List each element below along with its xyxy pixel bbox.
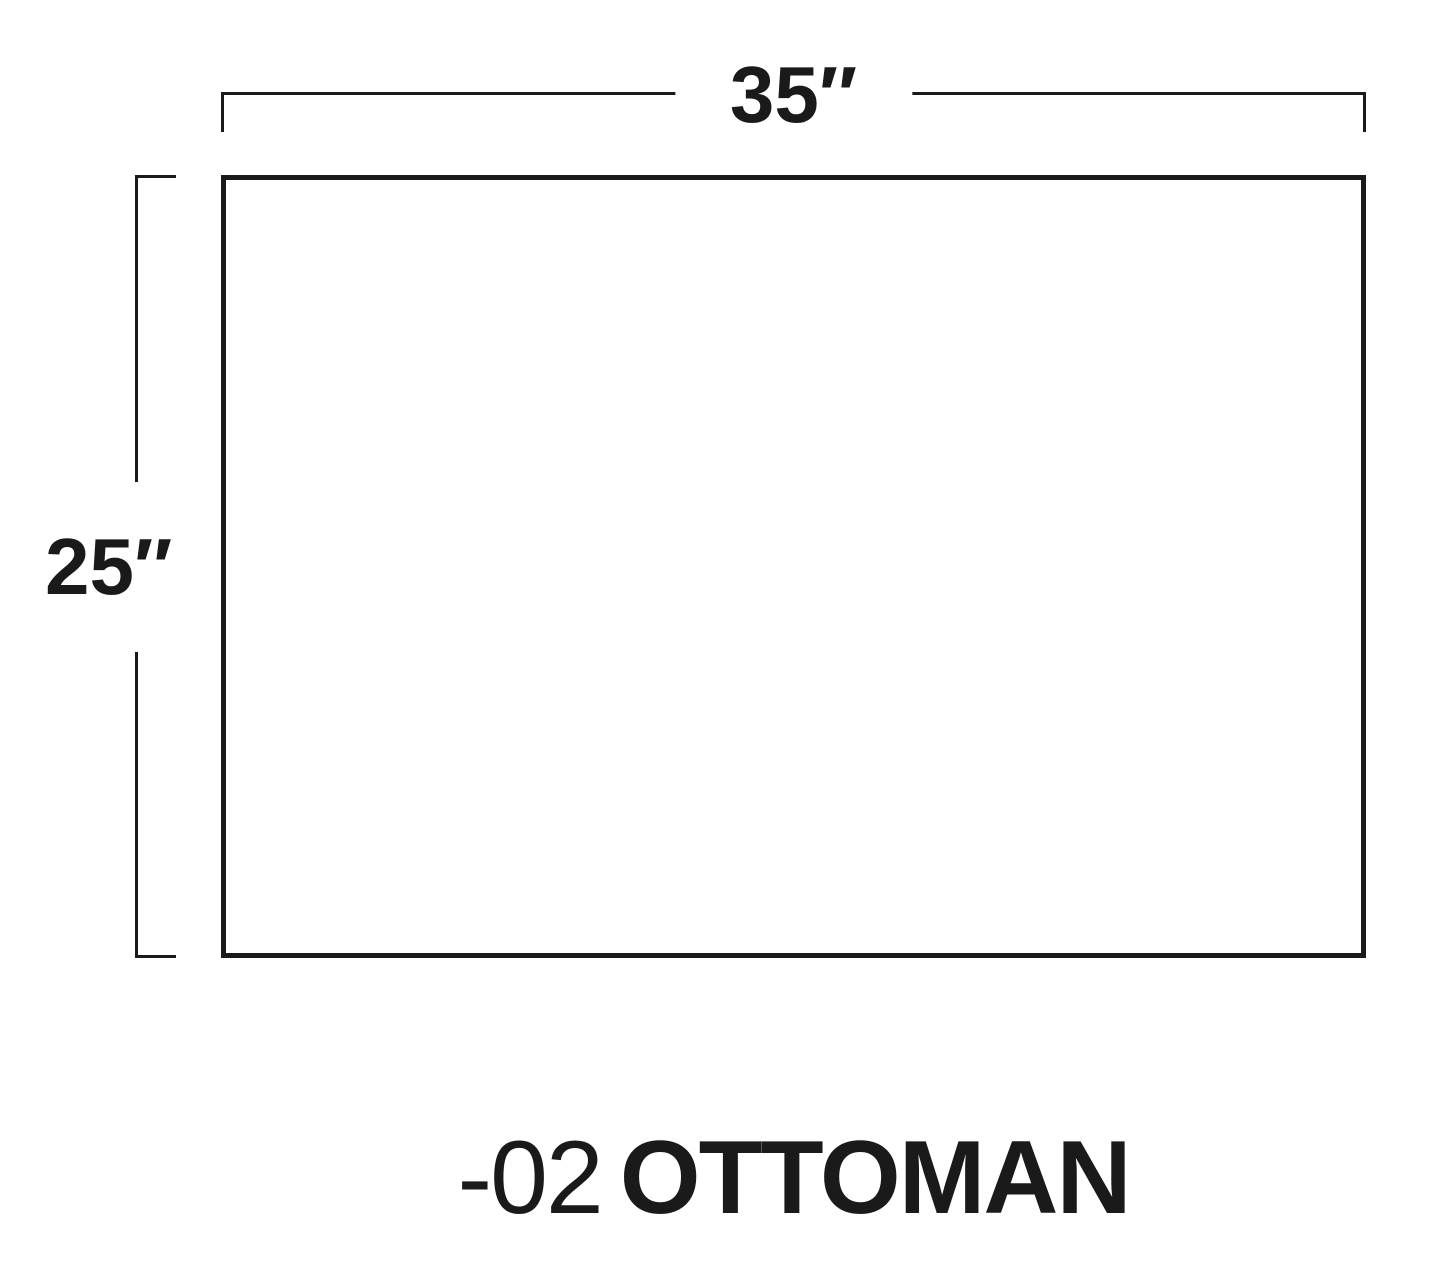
ottoman-outline <box>221 175 1366 958</box>
dimension-diagram: 35″ 25″ -02OTTOMAN <box>0 0 1445 1283</box>
product-name: OTTOMAN <box>620 1120 1130 1236</box>
product-label: -02OTTOMAN <box>221 1126 1366 1230</box>
height-dimension-bracket: 25″ <box>135 175 176 958</box>
product-code: -02 <box>457 1120 601 1236</box>
width-dimension-label: 35″ <box>675 54 912 136</box>
width-dimension-bracket: 35″ <box>221 92 1366 132</box>
height-dimension-label: 25″ <box>45 482 182 652</box>
